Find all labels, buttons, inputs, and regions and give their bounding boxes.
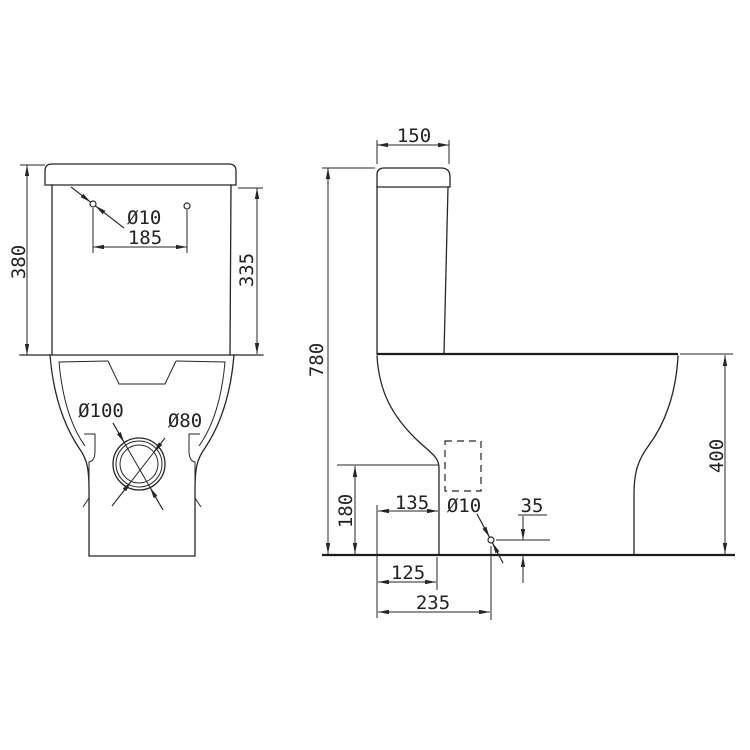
soil-pipe-dashed-box [445,441,481,491]
dim-fixing-height: 35 [496,495,550,583]
drawing-canvas: Ø100 Ø80 Ø10 185 380 [0,0,750,750]
pan-height-label: 400 [706,439,728,473]
pan-front-profile [634,356,678,554]
outlet-inner-dia-label: Ø80 [168,410,202,432]
cistern-lid-side [377,168,450,187]
hole-spacing-label: 185 [128,227,162,249]
pedestal-outline [50,355,234,556]
side-view: 150 780 400 180 135 12 [306,125,735,620]
lid-hole-arrow-b [95,206,124,228]
dim-lid-depth: 150 [377,125,449,164]
outlet-setback-label: 135 [395,492,429,514]
toilet-dimension-drawing: Ø100 Ø80 Ø10 185 380 [0,0,750,750]
foot-depth-label: 125 [391,562,425,584]
outlet-outer-dia-label: Ø100 [78,400,124,422]
fixing-hole [488,537,494,543]
dim-outlet-setback: 135 [378,492,438,514]
cistern-lid-front [45,164,236,185]
side-height-label: 780 [306,343,328,377]
outlet-middle-circle [116,441,162,487]
pedestal-inner-line-right [176,361,225,446]
dim-tank-height: 335 [236,188,263,354]
outlet-arrow-2a [154,438,165,452]
fixing-hole-arrow-a [477,514,490,537]
seat-notch [108,361,176,384]
pan-rear-profile [377,356,439,554]
tank-height-label: 335 [236,253,258,287]
lid-hole-left [90,201,96,207]
dim-foot-depth: 125 [378,557,437,590]
fixing-hole-arrow-b [492,543,503,563]
fixing-height-label: 35 [521,495,544,517]
front-view: Ø100 Ø80 Ø10 185 380 [8,164,263,556]
overall-height-label-front: 380 [8,245,30,279]
dim-overall-height-front: 380 [8,165,45,355]
lid-hole-arrow-a [71,187,91,202]
outlet-inner-circle [120,445,158,483]
outlet-arrow-1b [150,488,163,511]
outlet-arrow-1a [113,423,124,443]
lid-hole-dia-label: Ø10 [127,207,161,229]
dim-lid-hole: Ø10 [71,187,190,229]
fixing-setback-label: 235 [416,592,450,614]
fixing-hole-dia-label: Ø10 [447,495,481,517]
outlet-height-label: 180 [335,494,357,528]
lid-hole-right [184,203,190,209]
cistern-body-side [377,187,448,354]
dim-pan-height: 400 [680,354,733,554]
lid-depth-label: 150 [397,125,431,147]
outlet-outer-circle [113,438,165,490]
dim-outlet-outer: Ø100 [78,400,163,510]
dim-fixing-hole: Ø10 [447,495,503,563]
outlet-arrow-2b [112,481,131,506]
